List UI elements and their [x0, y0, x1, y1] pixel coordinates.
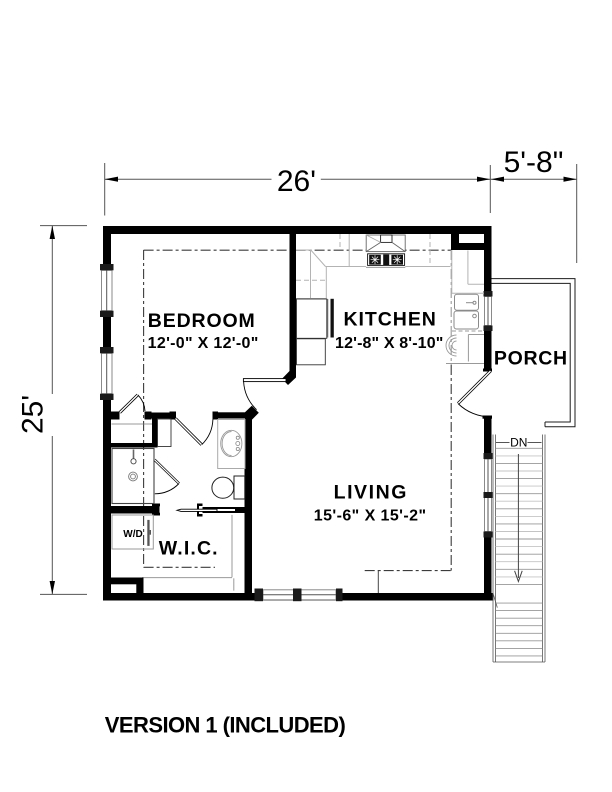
svg-text:12'-0" X 12'-0": 12'-0" X 12'-0" [148, 335, 259, 352]
svg-text:PORCH: PORCH [494, 348, 567, 370]
svg-text:15'-6" X 15'-2": 15'-6" X 15'-2" [314, 507, 426, 524]
svg-text:12'-8" X 8'-10": 12'-8" X 8'-10" [335, 335, 443, 352]
svg-text:DN: DN [510, 436, 527, 450]
svg-text:26': 26' [277, 165, 316, 198]
svg-text:LIVING: LIVING [334, 481, 407, 503]
svg-text:W.I.C.: W.I.C. [159, 537, 218, 559]
svg-text:KITCHEN: KITCHEN [344, 309, 436, 331]
svg-text:25': 25' [17, 395, 50, 434]
svg-text:VERSION 1 (INCLUDED): VERSION 1 (INCLUDED) [105, 713, 346, 738]
svg-text:5'-8": 5'-8" [504, 146, 564, 179]
svg-text:BEDROOM: BEDROOM [148, 310, 255, 332]
svg-text:W/D: W/D [123, 529, 142, 540]
